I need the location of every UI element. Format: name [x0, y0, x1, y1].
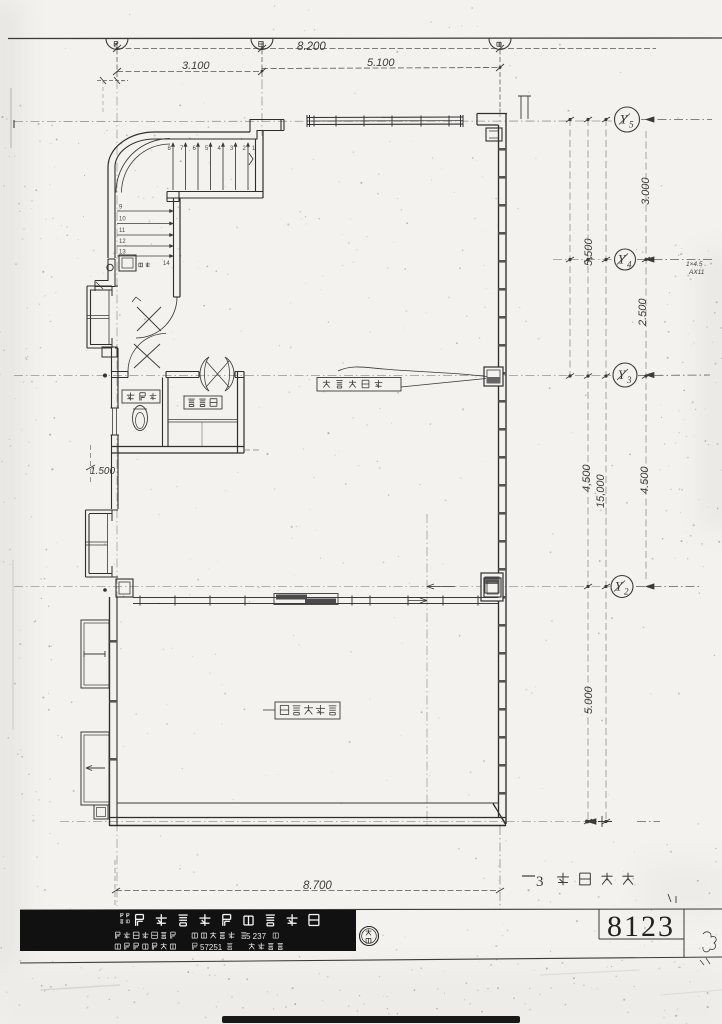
svg-text:15,000: 15,000 — [595, 473, 607, 508]
svg-text:8.200: 8.200 — [297, 41, 326, 53]
svg-text:3.000: 3.000 — [640, 177, 652, 205]
svg-text:5,500: 5,500 — [583, 238, 595, 266]
svg-text:1.500: 1.500 — [90, 466, 115, 477]
svg-text:5 237: 5 237 — [246, 932, 267, 941]
svg-text:11: 11 — [119, 228, 126, 234]
svg-text:3: 3 — [536, 874, 544, 890]
svg-text:3.100: 3.100 — [182, 60, 210, 72]
svg-text:4: 4 — [627, 260, 632, 270]
svg-text:14: 14 — [163, 261, 170, 267]
svg-text:5: 5 — [629, 120, 634, 130]
svg-text:2.500: 2.500 — [637, 298, 649, 327]
svg-text:AX11: AX11 — [688, 269, 705, 276]
svg-text:10: 10 — [119, 217, 126, 223]
svg-text:8123: 8123 — [607, 910, 675, 943]
svg-text:3: 3 — [626, 375, 632, 385]
svg-text:5.100: 5.100 — [367, 57, 395, 69]
svg-text:8.700: 8.700 — [303, 880, 332, 892]
svg-text:12: 12 — [119, 239, 126, 245]
svg-text:5.000: 5.000 — [583, 686, 595, 714]
svg-text:57251: 57251 — [200, 943, 223, 952]
svg-text:4.500: 4.500 — [639, 466, 651, 494]
svg-text:4,500: 4,500 — [581, 464, 593, 492]
svg-text:2: 2 — [624, 587, 629, 597]
svg-text:1×4.5: 1×4.5 — [686, 261, 703, 268]
